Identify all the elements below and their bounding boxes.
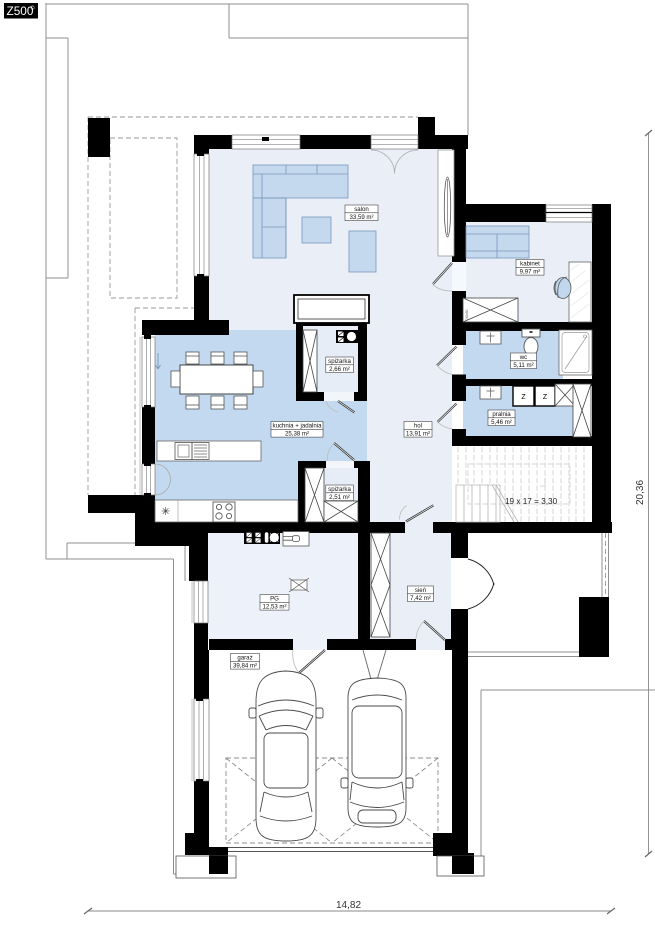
svg-text:kabinet: kabinet — [520, 261, 540, 268]
svg-text:12,53 m²: 12,53 m² — [262, 603, 286, 610]
svg-text:©: © — [31, 5, 35, 12]
svg-text:spiżarka: spiżarka — [328, 486, 351, 493]
svg-text:2,66 m²: 2,66 m² — [329, 366, 350, 373]
svg-text:pralnia: pralnia — [492, 411, 511, 418]
svg-text:kuchnia + jadalnia: kuchnia + jadalnia — [273, 423, 323, 430]
svg-text:5,11 m²: 5,11 m² — [513, 362, 533, 369]
svg-text:9,97 m²: 9,97 m² — [520, 268, 541, 275]
svg-text:240x60: 240x60 — [465, 309, 469, 320]
svg-text:salon: salon — [354, 206, 369, 213]
svg-text:wc: wc — [519, 354, 527, 361]
svg-text:5,46 m²: 5,46 m² — [491, 419, 512, 426]
svg-text:2,51 m²: 2,51 m² — [329, 494, 350, 501]
svg-text:spiżarka: spiżarka — [328, 358, 351, 365]
svg-text:39,84 m²: 39,84 m² — [233, 662, 257, 669]
svg-text:7,42 m²: 7,42 m² — [410, 595, 431, 602]
svg-text:✳: ✳ — [161, 506, 170, 518]
svg-text:Z: Z — [521, 394, 526, 401]
svg-text:14,82: 14,82 — [336, 900, 361, 911]
svg-text:33,59 m²: 33,59 m² — [349, 214, 373, 221]
svg-text:19 x 17 = 3,30: 19 x 17 = 3,30 — [505, 497, 558, 506]
svg-text:garaż: garaż — [237, 655, 252, 662]
svg-text:sień: sień — [415, 587, 426, 594]
svg-text:hol: hol — [414, 423, 422, 430]
svg-text:20,36: 20,36 — [635, 480, 646, 505]
svg-text:13,91 m²: 13,91 m² — [406, 430, 430, 437]
svg-text:Z: Z — [543, 394, 548, 401]
svg-text:25,38 m²: 25,38 m² — [285, 430, 309, 437]
svg-text:PG: PG — [270, 596, 279, 603]
